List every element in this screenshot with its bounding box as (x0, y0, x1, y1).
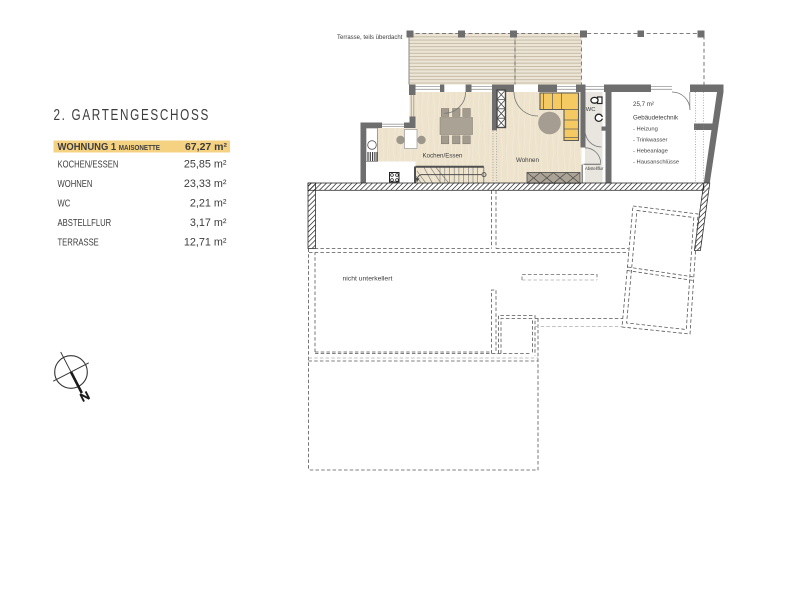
svg-text:23,33 m²: 23,33 m² (184, 178, 227, 190)
svg-text:2. GARTENGESCHOSS: 2. GARTENGESCHOSS (54, 106, 210, 123)
svg-text:Abstellflur: Abstellflur (585, 166, 604, 171)
svg-text:WC: WC (586, 107, 596, 113)
svg-text:nicht unterkellert: nicht unterkellert (343, 276, 393, 283)
svg-text:ABSTELLFLUR: ABSTELLFLUR (58, 217, 112, 228)
svg-text:WOHNEN: WOHNEN (58, 178, 93, 189)
svg-text:Terrasse, teils überdacht: Terrasse, teils überdacht (337, 35, 403, 41)
svg-text:WC: WC (58, 198, 71, 209)
svg-text:- Trinkwasser: - Trinkwasser (633, 138, 668, 144)
svg-text:- Heizung: - Heizung (633, 127, 658, 133)
svg-text:67,27 m²: 67,27 m² (185, 141, 228, 153)
svg-text:25,7 m²: 25,7 m² (633, 101, 654, 108)
svg-text:- Hebeanlage: - Hebeanlage (633, 149, 668, 155)
svg-text:TERRASSE: TERRASSE (58, 237, 99, 248)
svg-text:25,85 m²: 25,85 m² (184, 159, 227, 171)
svg-text:Kochen/Essen: Kochen/Essen (423, 153, 463, 160)
svg-text:2,21 m²: 2,21 m² (190, 198, 227, 210)
svg-text:- Hausanschlüsse: - Hausanschlüsse (633, 160, 679, 166)
svg-text:3,17 m²: 3,17 m² (190, 217, 227, 229)
svg-text:Gebäudetechnik: Gebäudetechnik (633, 115, 679, 122)
svg-text:KOCHEN/ESSEN: KOCHEN/ESSEN (58, 159, 119, 170)
svg-text:12,71 m²: 12,71 m² (184, 237, 227, 249)
svg-text:Wohnen: Wohnen (516, 157, 539, 164)
